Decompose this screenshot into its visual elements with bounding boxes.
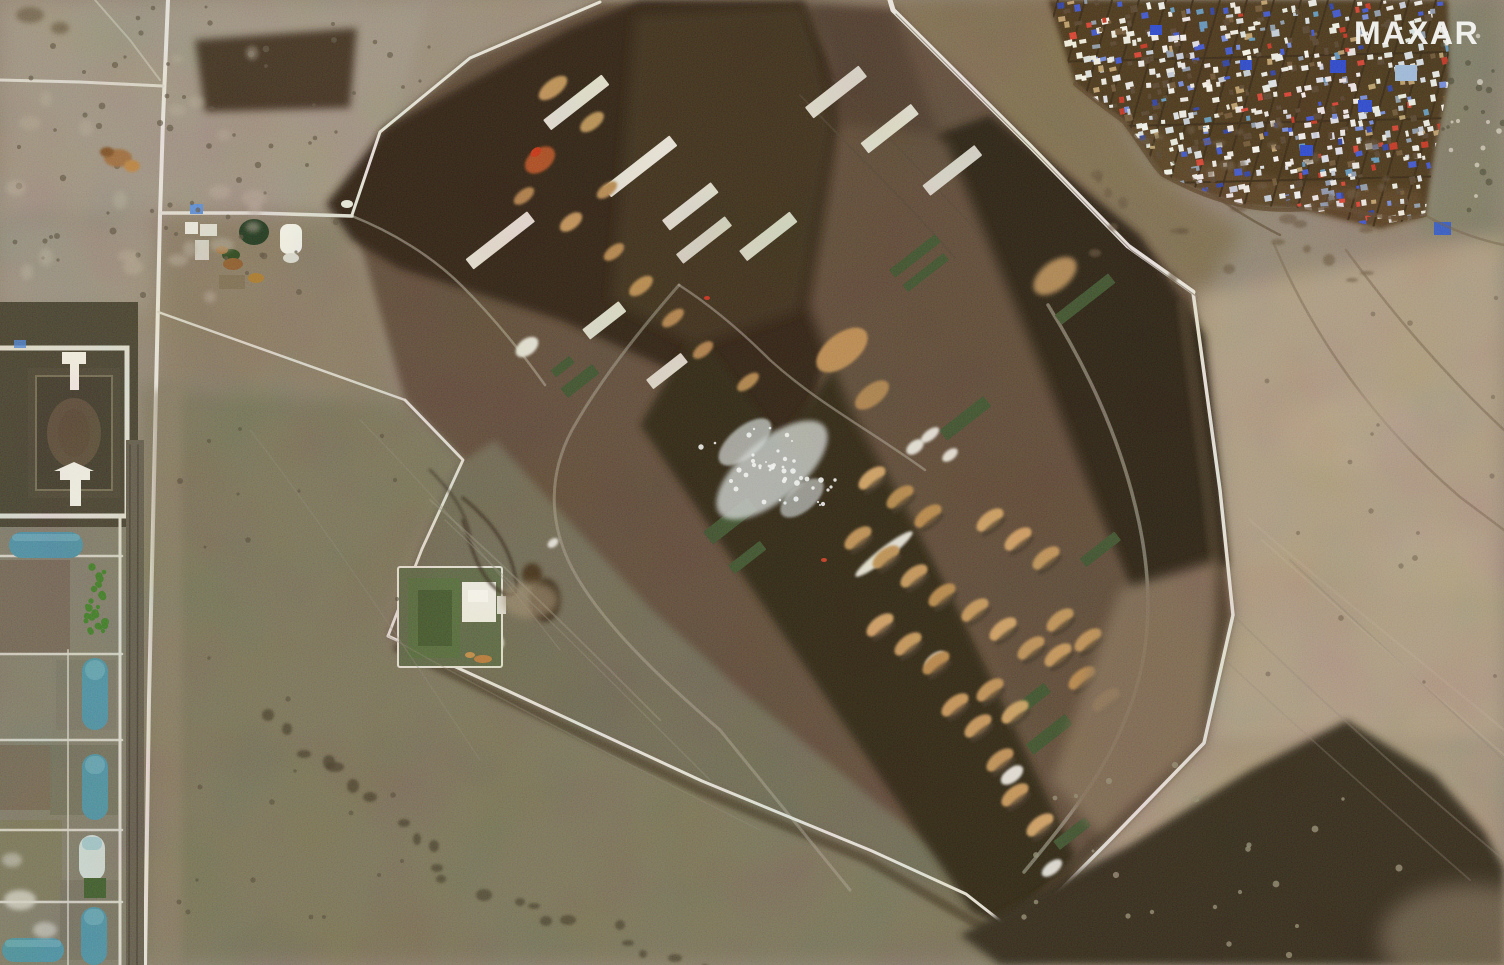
svg-text:MAXAR: MAXAR <box>1354 15 1479 51</box>
